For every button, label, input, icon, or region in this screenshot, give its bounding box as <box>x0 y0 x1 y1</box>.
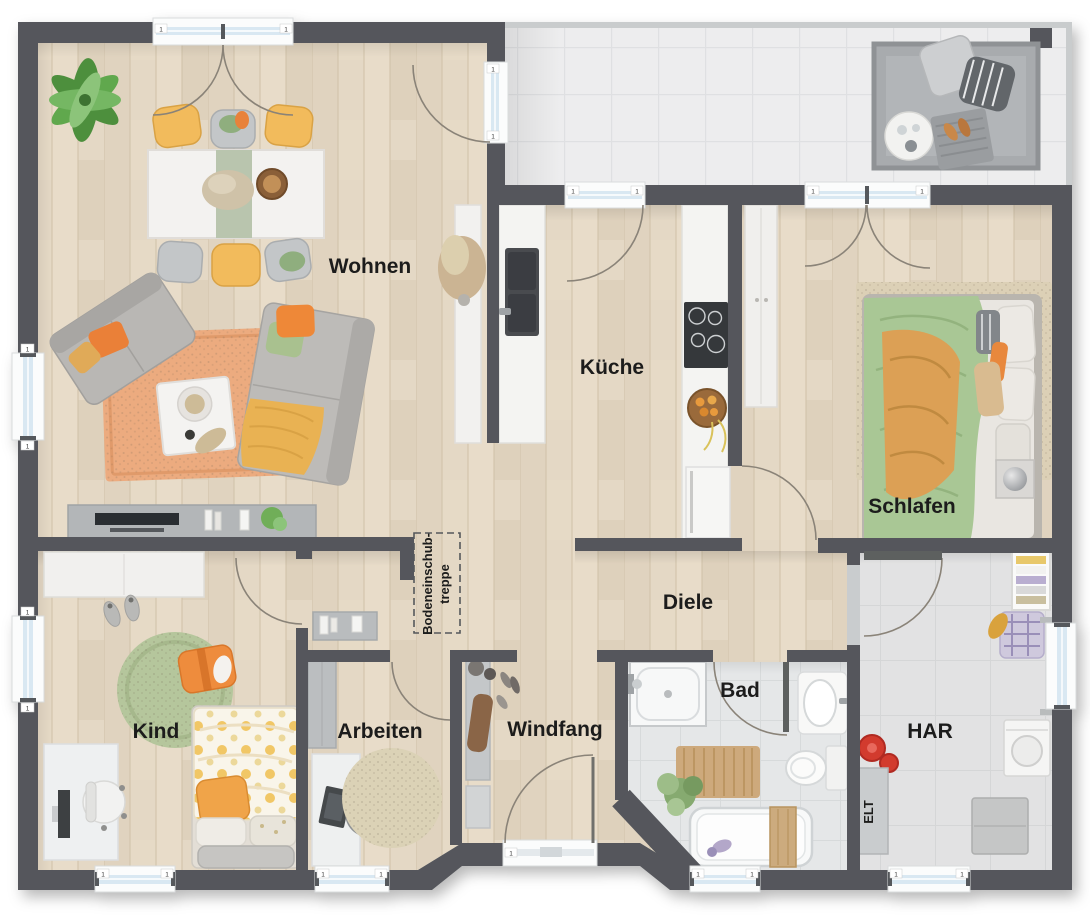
office-rug <box>342 748 442 848</box>
window-mark: 1 <box>321 872 325 879</box>
bedroom-wardrobe <box>745 205 777 407</box>
room-label-windfang: Windfang <box>507 718 602 741</box>
window-mark: 1 <box>26 610 30 617</box>
bathtub <box>690 807 812 867</box>
dining-chair <box>264 104 314 149</box>
room-label-bad: Bad <box>720 679 760 702</box>
kid-bed <box>192 706 300 868</box>
window-mark: 1 <box>491 134 495 141</box>
attic-stairs-label-line2: treppe <box>437 564 452 604</box>
kid-wardrobe <box>44 552 204 597</box>
room-label-schlafen: Schlafen <box>868 495 956 518</box>
kitchen-faucet <box>499 308 511 315</box>
kitchen-counter-right <box>682 205 730 540</box>
window-mark: 1 <box>26 706 30 713</box>
window-mark: 1 <box>284 27 288 34</box>
office-cabinet <box>308 656 336 748</box>
window-mark: 1 <box>960 872 964 879</box>
window-mark: 1 <box>26 444 30 451</box>
attic-stairs-label-line1: Bodeneinschub- <box>420 533 435 635</box>
window-mark: 1 <box>379 872 383 879</box>
room-label-arbeiten: Arbeiten <box>337 720 422 743</box>
window-mark: 1 <box>165 872 169 879</box>
room-label-wohnen: Wohnen <box>329 255 411 278</box>
dining-chair <box>151 103 202 149</box>
room-label-kueche: Küche <box>580 356 644 379</box>
window-mark: 1 <box>696 872 700 879</box>
drying-rack <box>1012 550 1050 610</box>
window <box>12 353 44 440</box>
window-mark: 1 <box>571 189 575 196</box>
window-mark: 1 <box>159 27 163 34</box>
storage-box <box>972 798 1028 854</box>
dining-chair <box>212 244 260 286</box>
window-mark: 1 <box>509 851 513 858</box>
kitchen-counter-left <box>499 205 545 443</box>
window-mark: 1 <box>750 872 754 879</box>
window-mark: 1 <box>26 347 30 354</box>
tv-sideboard <box>68 505 316 538</box>
dining-chair <box>263 237 312 283</box>
room-label-diele: Diele <box>663 591 713 614</box>
window-mark: 1 <box>811 189 815 196</box>
shower <box>628 662 706 726</box>
hall-console <box>313 612 377 640</box>
bedside-cube <box>996 460 1034 498</box>
terrace-edge-right <box>1066 22 1072 190</box>
toilet <box>786 746 847 790</box>
bathroom-sink <box>798 672 848 734</box>
terrace-tray <box>885 112 933 160</box>
room-label-har: HAR <box>907 720 953 743</box>
terrace-edge-top <box>505 22 1072 28</box>
window-mark: 1 <box>491 67 495 74</box>
dining-chair <box>157 241 204 284</box>
window-mark: 1 <box>920 189 924 196</box>
dining-set <box>148 103 324 286</box>
electrical-label: ELT <box>861 800 876 824</box>
room-label-kind: Kind <box>133 720 180 743</box>
washing-machine <box>1004 720 1050 776</box>
kid-floor-pillow <box>177 643 239 694</box>
dining-chair <box>211 110 255 148</box>
coffee-table <box>156 376 236 462</box>
window-mark: 1 <box>101 872 105 879</box>
floorplan-canvas: 1 1 1 1 1 1 1 1 1 1 1 1 1 1 1 1 1 1 1 1 … <box>0 0 1090 915</box>
window-mark: 1 <box>635 189 639 196</box>
window <box>12 616 44 702</box>
window-mark: 1 <box>894 872 898 879</box>
terrace-mat <box>930 108 995 171</box>
floorplan-svg: 1 1 1 1 1 1 1 1 1 1 1 1 1 1 1 1 1 1 1 1 … <box>0 0 1090 915</box>
